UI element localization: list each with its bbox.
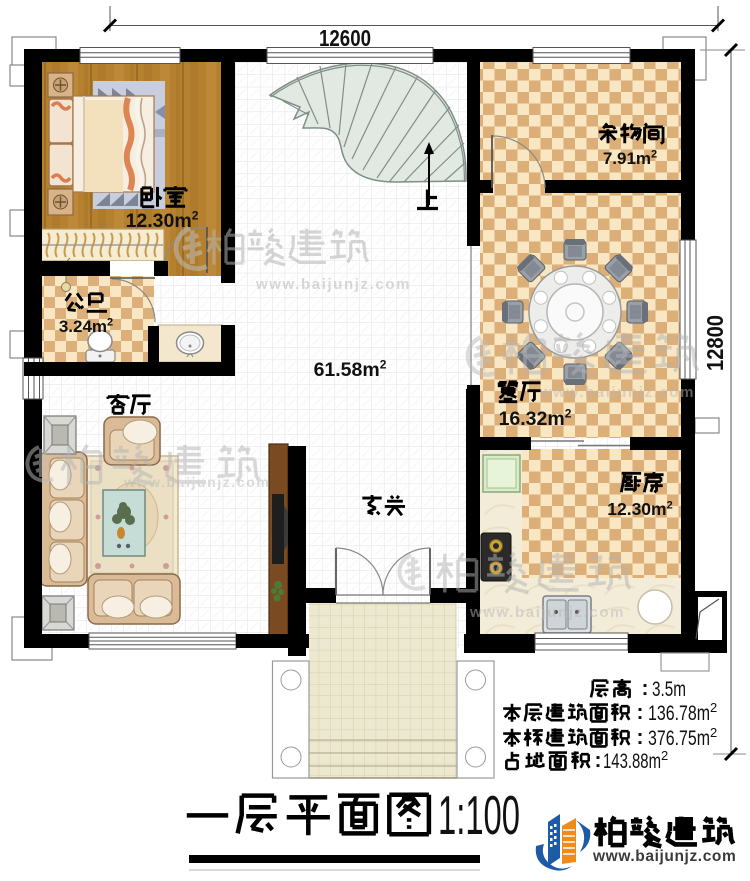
svg-text:1:100: 1:100: [438, 784, 520, 846]
svg-text:7.91m2: 7.91m2: [603, 149, 657, 169]
svg-text:143.88m: 143.88m: [603, 750, 661, 773]
svg-text:2: 2: [710, 700, 717, 715]
svg-text:136.78m: 136.78m: [648, 702, 710, 725]
svg-text::: :: [595, 749, 602, 772]
svg-text::: :: [637, 726, 644, 749]
svg-text:12.30m2: 12.30m2: [607, 499, 672, 519]
svg-text:2: 2: [661, 748, 668, 763]
svg-text:376.75m: 376.75m: [648, 727, 710, 750]
svg-text:61.58m2: 61.58m2: [314, 358, 387, 381]
svg-text:16.32m2: 16.32m2: [499, 407, 572, 430]
svg-text::: :: [642, 677, 649, 700]
svg-text::: :: [637, 701, 644, 724]
svg-text:3.5m: 3.5m: [652, 678, 686, 701]
svg-text:www.baijunjz.com: www.baijunjz.com: [255, 276, 411, 293]
svg-text:www.baijunjz.com: www.baijunjz.com: [592, 848, 736, 865]
svg-text:www.baijunjz.com: www.baijunjz.com: [123, 474, 270, 490]
svg-text:2: 2: [710, 725, 717, 740]
svg-text:12800: 12800: [702, 315, 728, 371]
svg-text:www.baijunjz.com: www.baijunjz.com: [539, 384, 695, 401]
svg-text:www.baijunjz.com: www.baijunjz.com: [469, 604, 625, 621]
svg-text:3.24m2: 3.24m2: [59, 317, 113, 337]
svg-text:12.30m2: 12.30m2: [126, 209, 199, 232]
svg-text:12600: 12600: [319, 25, 371, 51]
